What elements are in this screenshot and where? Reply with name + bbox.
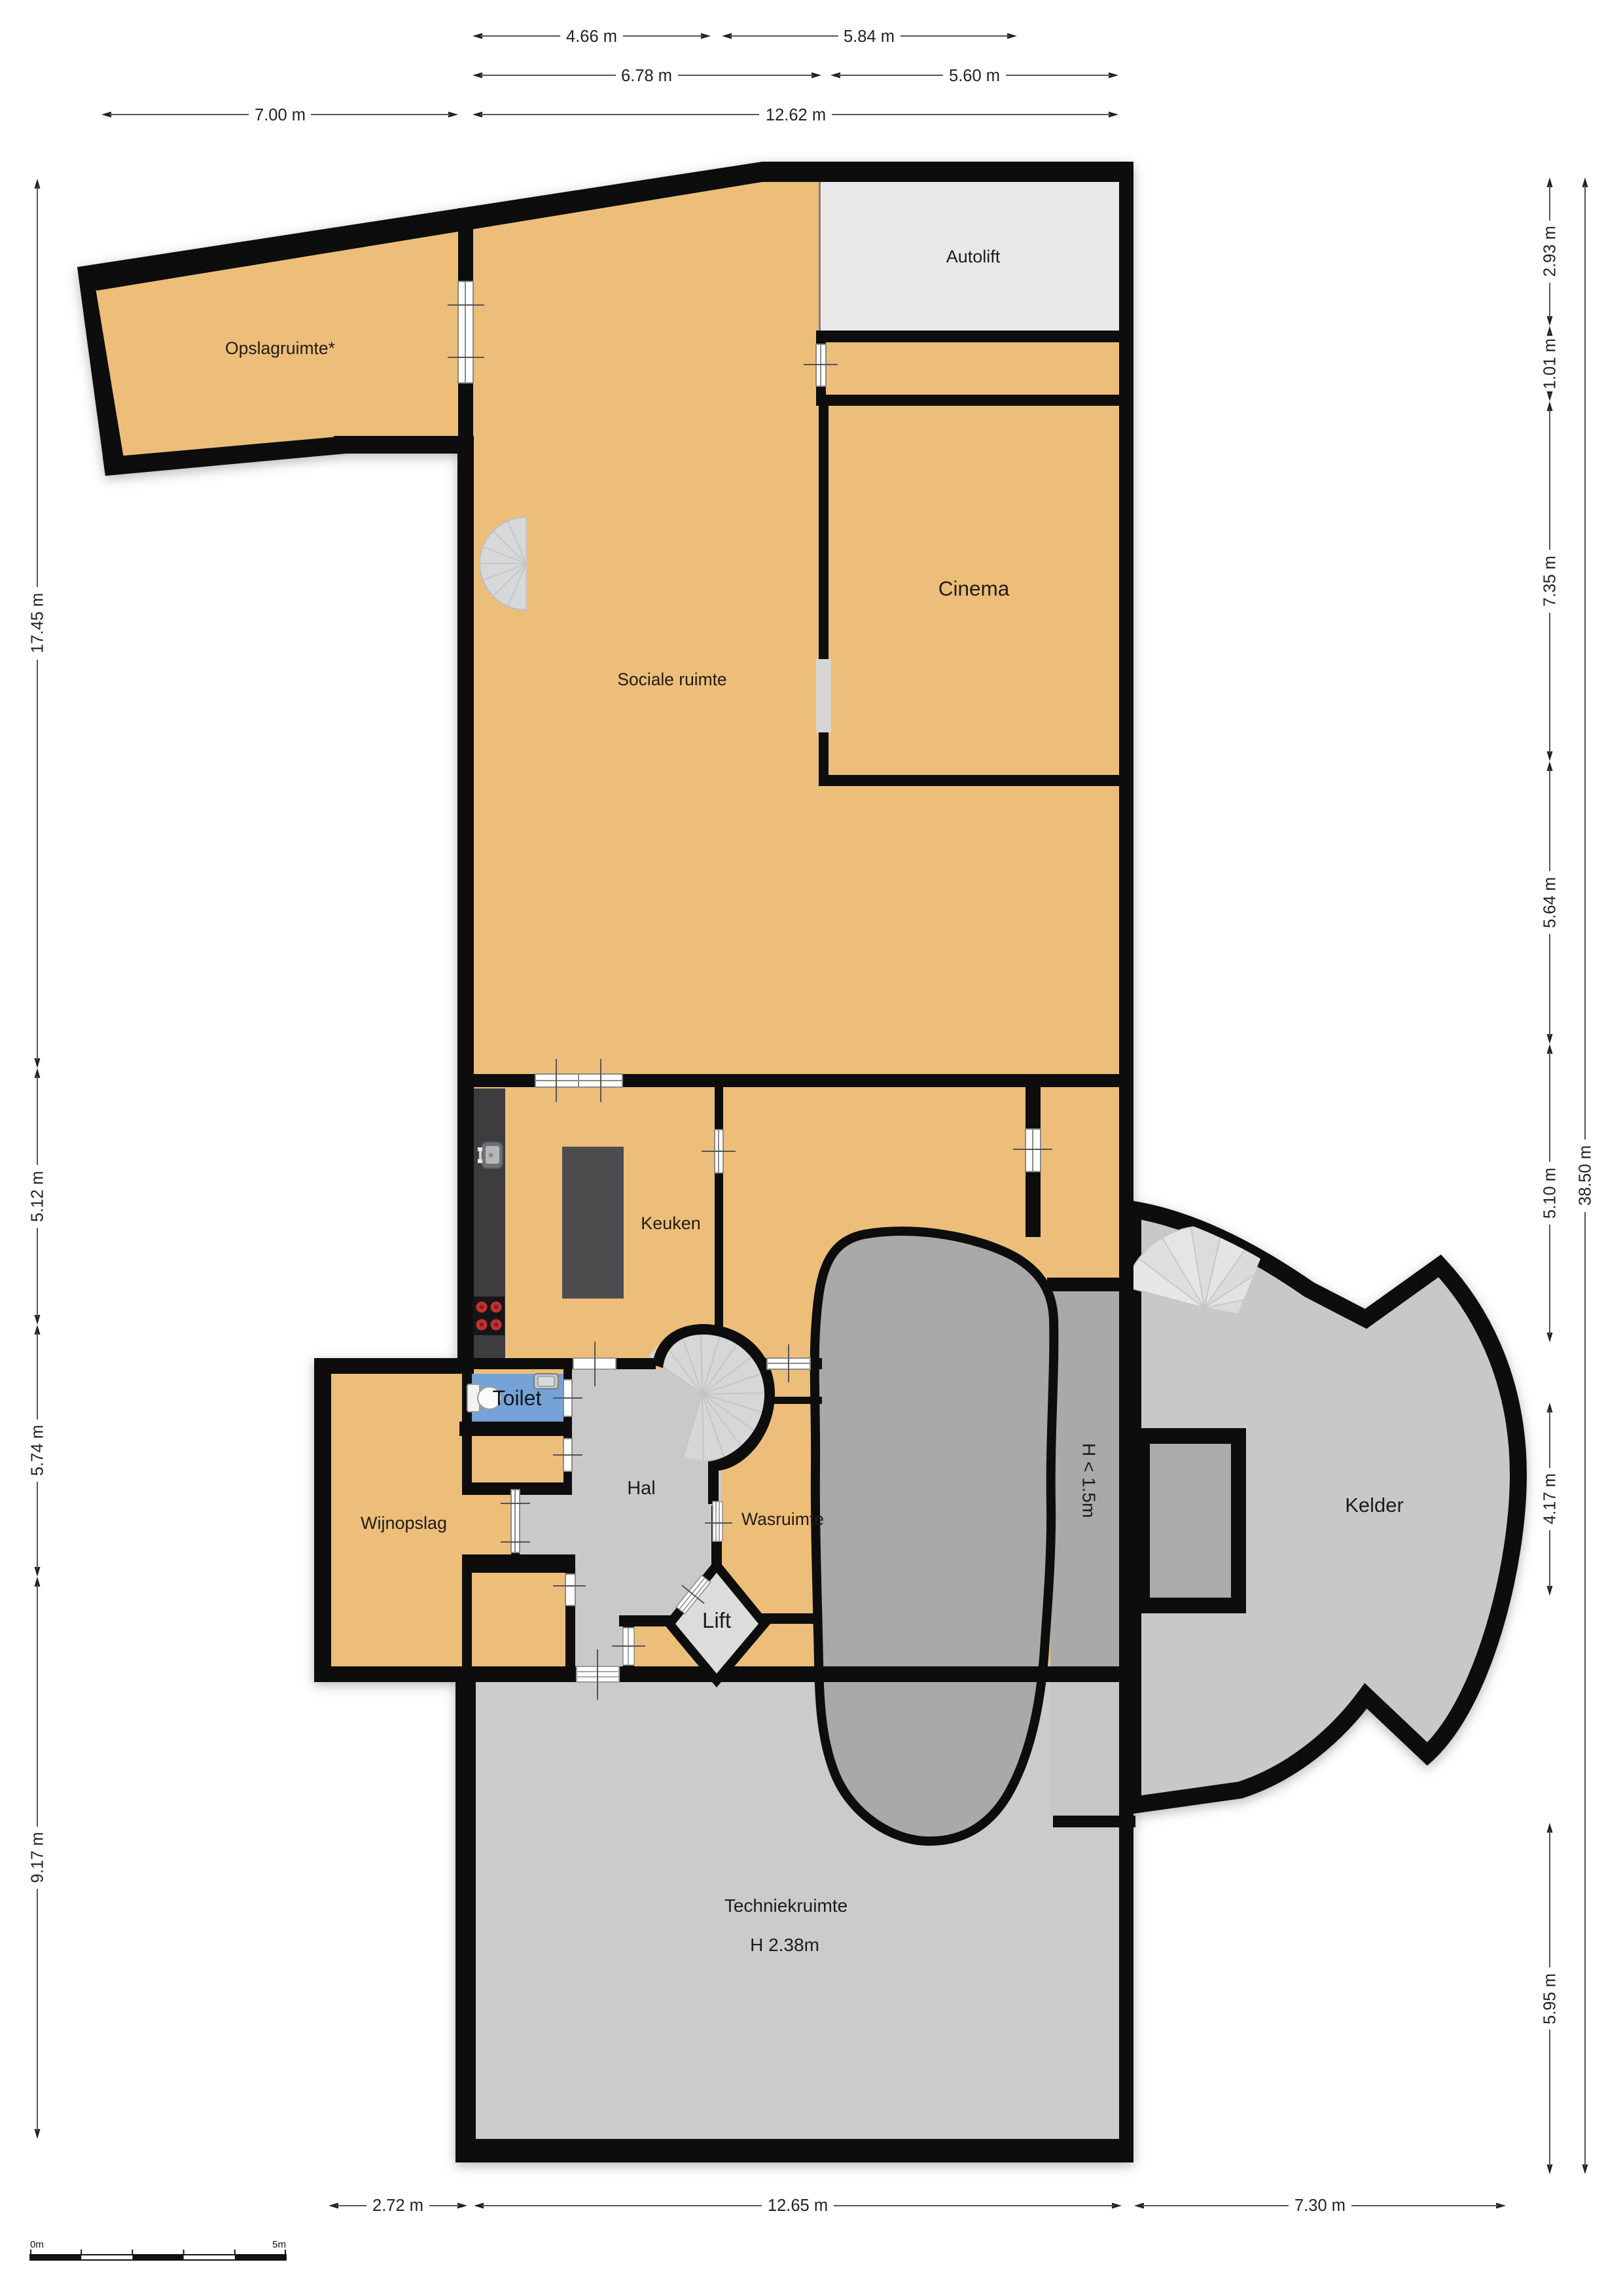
svg-text:6.78 m: 6.78 m (621, 67, 672, 85)
svg-text:5.84 m: 5.84 m (844, 27, 895, 46)
svg-text:9.17 m: 9.17 m (29, 1832, 47, 1883)
svg-text:12.62 m: 12.62 m (766, 106, 826, 124)
svg-text:38.50 m: 38.50 m (1577, 1145, 1595, 1206)
svg-text:Wijnopslag: Wijnopslag (361, 1513, 447, 1533)
svg-text:12.65 m: 12.65 m (768, 2197, 828, 2215)
svg-text:4.17 m: 4.17 m (1541, 1473, 1560, 1524)
svg-text:7.30 m: 7.30 m (1294, 2197, 1346, 2215)
svg-text:H 2.38m: H 2.38m (750, 1935, 819, 1955)
svg-text:2.72 m: 2.72 m (372, 2197, 423, 2215)
svg-text:17.45 m: 17.45 m (29, 593, 47, 653)
svg-text:4.66 m: 4.66 m (566, 27, 617, 46)
svg-text:5.74 m: 5.74 m (29, 1425, 47, 1476)
svg-text:5m: 5m (272, 2239, 286, 2250)
svg-text:Lift: Lift (702, 1608, 731, 1632)
svg-text:2.93 m: 2.93 m (1541, 226, 1560, 277)
svg-text:Keuken: Keuken (641, 1213, 701, 1233)
svg-text:Opslagruimte*: Opslagruimte* (225, 338, 335, 358)
svg-text:Sociale ruimte: Sociale ruimte (617, 670, 726, 689)
svg-text:0m: 0m (30, 2239, 44, 2250)
svg-text:5.95 m: 5.95 m (1541, 1973, 1560, 2024)
svg-text:Techniekruimte: Techniekruimte (724, 1895, 847, 1916)
svg-text:7.35 m: 7.35 m (1541, 556, 1560, 607)
svg-text:5.10 m: 5.10 m (1541, 1168, 1560, 1219)
svg-text:Autolift: Autolift (946, 247, 1001, 266)
svg-text:Kelder: Kelder (1345, 1494, 1404, 1516)
svg-text:H < 1.5m: H < 1.5m (1079, 1443, 1099, 1518)
svg-text:Cinema: Cinema (938, 577, 1010, 600)
svg-text:5.60 m: 5.60 m (949, 67, 1000, 85)
svg-text:1.01 m: 1.01 m (1541, 338, 1560, 389)
svg-text:Wasruimte: Wasruimte (741, 1509, 824, 1529)
svg-text:Hal: Hal (627, 1478, 656, 1499)
svg-text:Toilet: Toilet (493, 1386, 542, 1410)
svg-text:5.64 m: 5.64 m (1541, 877, 1560, 928)
svg-text:5.12 m: 5.12 m (29, 1171, 47, 1222)
svg-text:7.00 m: 7.00 m (255, 106, 306, 124)
